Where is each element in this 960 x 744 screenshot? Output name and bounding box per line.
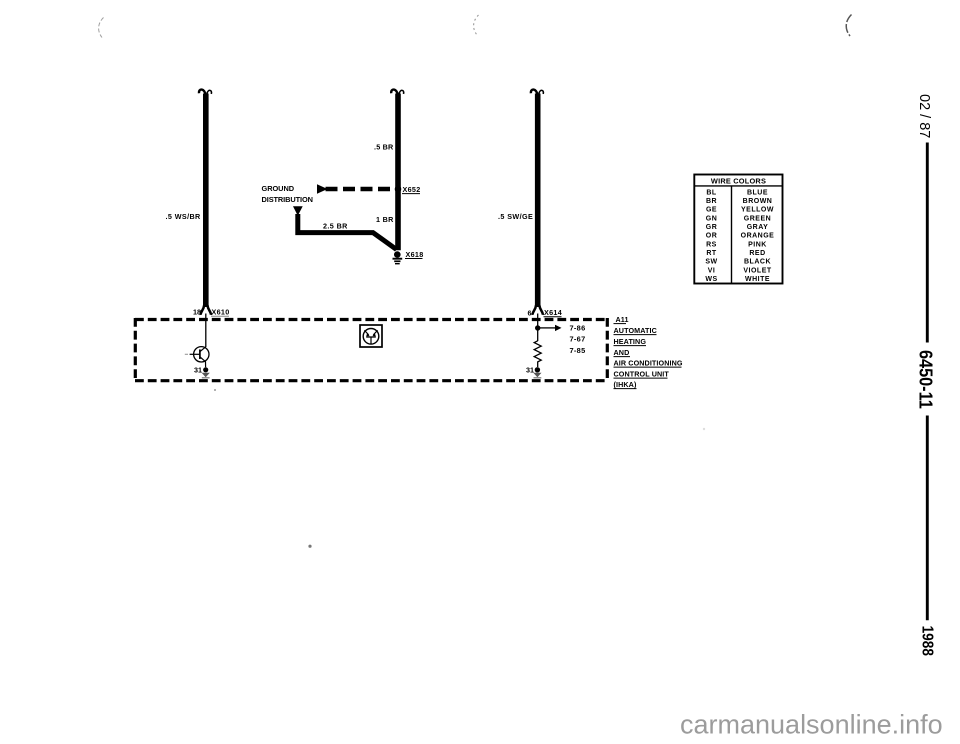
svg-text:GROUND: GROUND (262, 184, 295, 193)
svg-text:BLUE: BLUE (747, 189, 768, 196)
svg-text:7-85: 7-85 (570, 346, 586, 355)
svg-text:BROWN: BROWN (743, 198, 773, 205)
svg-text:BL: BL (706, 189, 717, 196)
svg-text:AIR CONDITIONING: AIR CONDITIONING (614, 358, 683, 367)
svg-text:6: 6 (528, 309, 532, 318)
svg-text:1988: 1988 (918, 626, 935, 656)
svg-text:BLACK: BLACK (744, 259, 771, 266)
svg-text:X614: X614 (544, 308, 562, 317)
svg-text:ORANGE: ORANGE (741, 233, 775, 240)
svg-text:AUTOMATIC: AUTOMATIC (614, 326, 657, 335)
svg-text:GR: GR (706, 224, 718, 231)
svg-text:CONTROL UNIT: CONTROL UNIT (614, 369, 670, 378)
svg-text:2.5 BR: 2.5 BR (323, 221, 348, 230)
svg-text:RT: RT (706, 250, 717, 257)
svg-text:X610: X610 (212, 308, 230, 317)
svg-text:OR: OR (706, 233, 718, 240)
svg-text:31: 31 (526, 365, 534, 374)
svg-text:RS: RS (706, 241, 717, 248)
svg-text:X652: X652 (403, 185, 421, 194)
svg-text:BR: BR (706, 198, 717, 205)
svg-text:7-67: 7-67 (570, 334, 586, 343)
svg-text:PINK: PINK (748, 241, 767, 248)
svg-text:WS: WS (705, 276, 717, 283)
svg-text:carmanualsonline.info: carmanualsonline.info (680, 710, 943, 740)
svg-text:RED: RED (749, 250, 765, 257)
svg-text:6450-11: 6450-11 (915, 350, 936, 409)
svg-text:GRAY: GRAY (747, 224, 769, 231)
svg-text:(IHKA): (IHKA) (614, 380, 637, 389)
svg-text:1 BR: 1 BR (376, 215, 394, 224)
svg-text:YELLOW: YELLOW (741, 207, 774, 214)
svg-text:02 / 87: 02 / 87 (916, 94, 932, 138)
svg-text:DISTRIBUTION: DISTRIBUTION (262, 195, 313, 204)
svg-text:VIOLET: VIOLET (743, 267, 772, 274)
svg-text:WHITE: WHITE (745, 276, 770, 283)
svg-text:WIRE COLORS: WIRE COLORS (711, 176, 766, 185)
svg-text:A11: A11 (616, 315, 629, 324)
svg-text:SW: SW (705, 259, 717, 266)
svg-text:.5 WS/BR: .5 WS/BR (166, 212, 202, 221)
svg-text:.5 BR: .5 BR (374, 143, 394, 152)
svg-text:.5 SW/GE: .5 SW/GE (498, 212, 533, 221)
svg-text:X618: X618 (406, 250, 424, 259)
svg-text:7-86: 7-86 (570, 323, 586, 332)
svg-text:VI: VI (708, 267, 716, 274)
svg-text:18: 18 (193, 308, 201, 317)
svg-text:AND: AND (614, 348, 630, 357)
svg-text:GN: GN (706, 215, 718, 222)
svg-text:GE: GE (706, 207, 717, 214)
svg-text:31: 31 (194, 365, 202, 374)
svg-text:GREEN: GREEN (744, 215, 771, 222)
svg-text:HEATING: HEATING (614, 337, 647, 346)
